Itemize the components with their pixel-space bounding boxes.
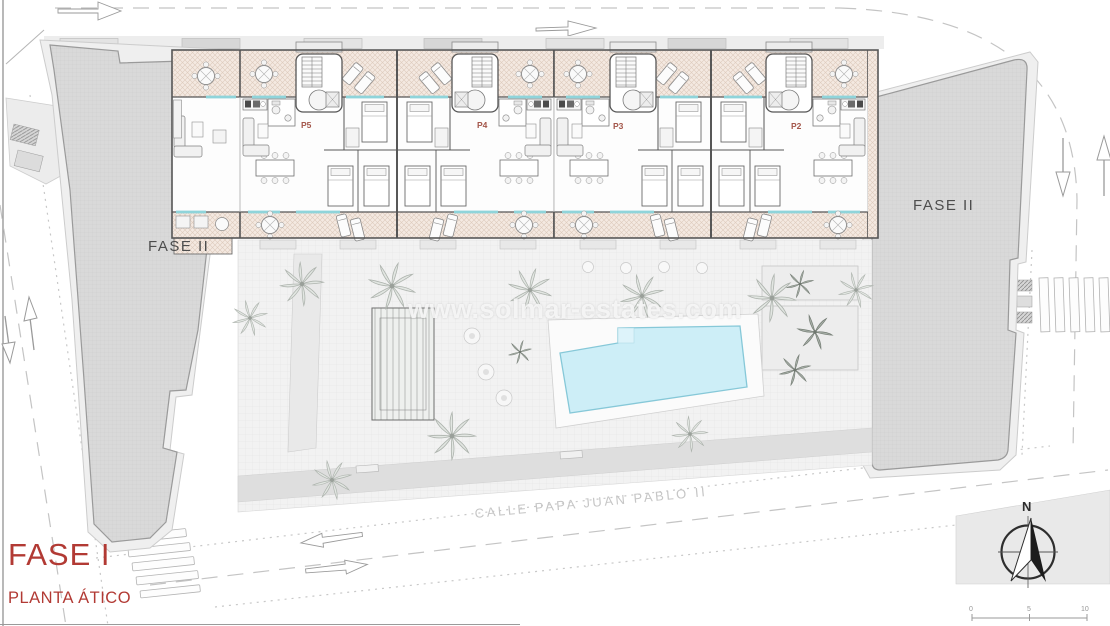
traffic-arrow-right <box>58 2 121 20</box>
apartment-unit <box>711 42 868 241</box>
phase-title: FASE I <box>8 537 110 573</box>
scale-tick-10: 10 <box>1081 606 1089 613</box>
apartment-unit <box>554 42 711 241</box>
scale-tick-5: 5 <box>1027 606 1031 613</box>
garden-courtyard <box>226 240 873 512</box>
traffic-arrow-right <box>305 557 368 578</box>
unit-label-p2: P2 <box>791 121 801 131</box>
unit-label-p3: P3 <box>613 121 623 131</box>
apartment-unit <box>397 42 554 241</box>
traffic-arrow-right <box>536 21 596 36</box>
traffic-arrow-left <box>300 528 363 549</box>
scale-bar <box>972 614 1087 621</box>
watermark: www.solmar-estates.com <box>408 294 742 325</box>
traffic-arrow-up <box>1097 136 1110 160</box>
right-phase2-block <box>860 52 1038 478</box>
scale-tick-0: 0 <box>969 606 973 613</box>
apartment-left-cap <box>172 50 240 254</box>
site-plan-canvas: FASE II FASE II P5 P4 P3 P2 www.solmar-e… <box>0 0 1110 626</box>
right-road <box>1022 136 1110 455</box>
unit-label-p5: P5 <box>301 120 311 130</box>
traffic-arrow-up <box>24 297 37 321</box>
traffic-arrow-down <box>1056 172 1070 196</box>
right-phase2-block-label: FASE II <box>913 197 974 214</box>
apartment-unit <box>240 42 397 241</box>
left-phase2-block-label: FASE II <box>148 238 209 255</box>
unit-label-p4: P4 <box>477 120 487 130</box>
crosswalk-right <box>1017 278 1110 332</box>
traffic-arrow-down <box>2 342 15 363</box>
floor-subtitle: PLANTA ÁTICO <box>8 589 131 608</box>
north-label: N <box>1022 499 1031 514</box>
apartment-building <box>172 42 878 254</box>
